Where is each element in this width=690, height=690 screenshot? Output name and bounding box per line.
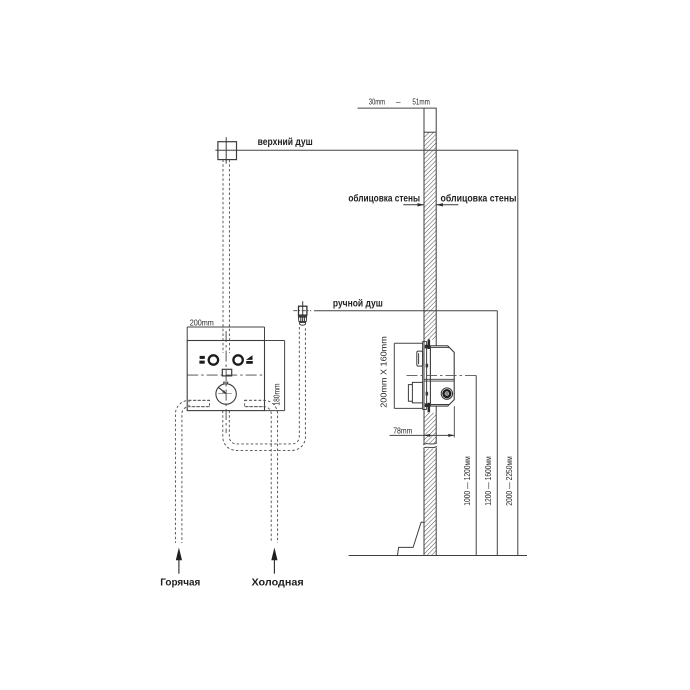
svg-text:Горячая: Горячая [160, 578, 200, 589]
svg-text:78mm: 78mm [393, 426, 412, 436]
svg-text:200mm X 160mm: 200mm X 160mm [379, 336, 389, 408]
svg-text:200mm: 200mm [190, 318, 214, 328]
svg-text:2000 — 2250мм: 2000 — 2250мм [504, 456, 514, 506]
svg-text:51mm: 51mm [412, 97, 430, 107]
svg-text:–: – [396, 96, 401, 106]
svg-text:1000 — 1200мм: 1000 — 1200мм [462, 456, 472, 506]
svg-text:верхний душ: верхний душ [258, 137, 313, 148]
svg-text:ручной душ: ручной душ [333, 299, 383, 310]
svg-text:облицовка стены: облицовка стены [441, 193, 517, 204]
svg-text:180mm: 180mm [272, 383, 282, 405]
svg-text:облицовка стены: облицовка стены [348, 193, 420, 204]
svg-text:Холодная: Холодная [252, 578, 305, 589]
svg-text:30mm: 30mm [369, 97, 385, 107]
svg-text:1200 — 1600мм: 1200 — 1600мм [483, 456, 493, 506]
